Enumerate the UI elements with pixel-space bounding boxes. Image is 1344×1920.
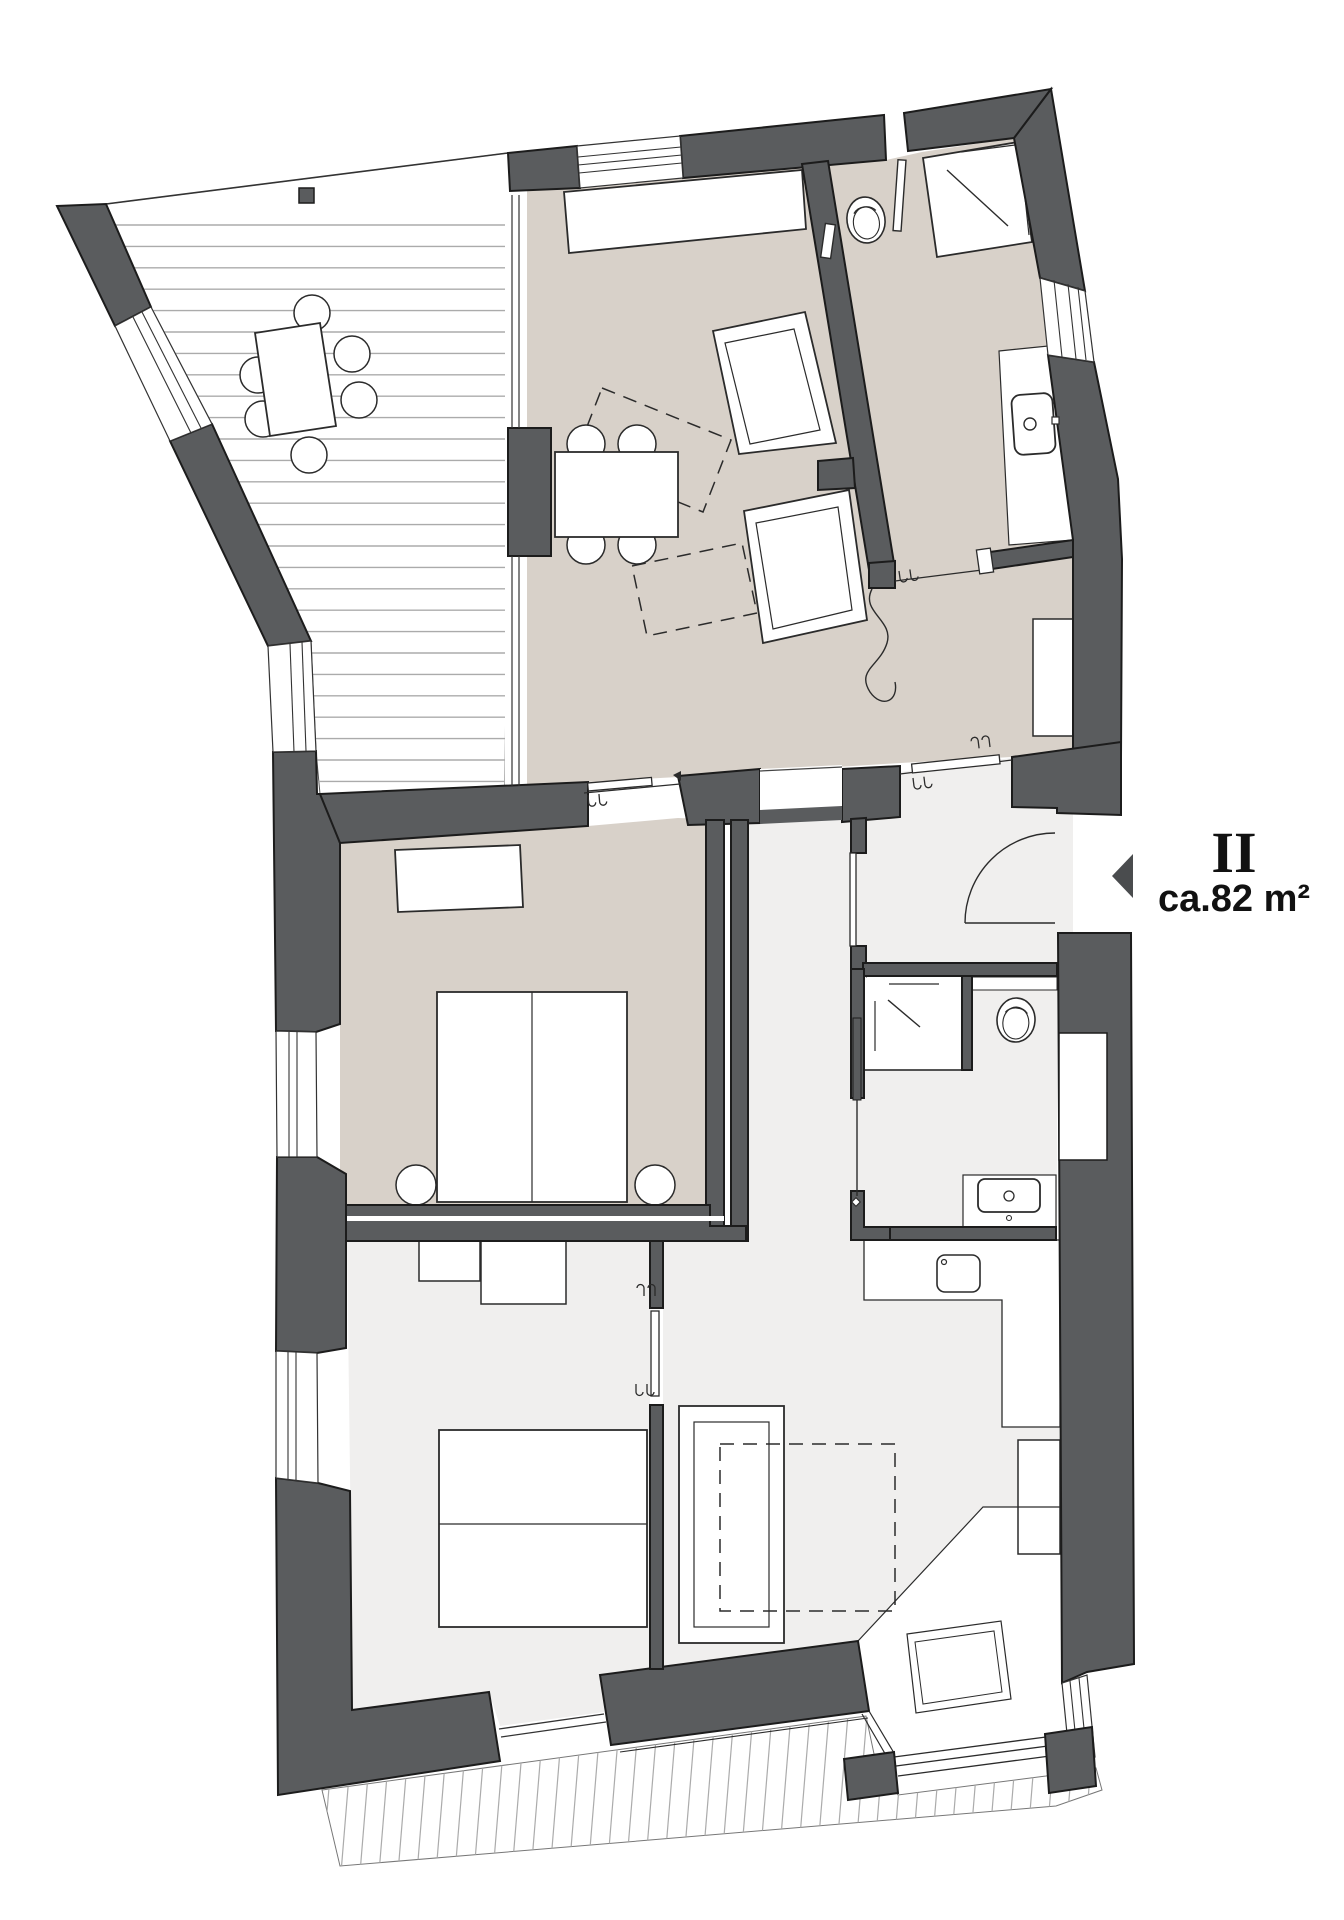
svg-text:II: II [1211,820,1256,885]
svg-text:ca.82 m²: ca.82 m² [1158,878,1310,920]
